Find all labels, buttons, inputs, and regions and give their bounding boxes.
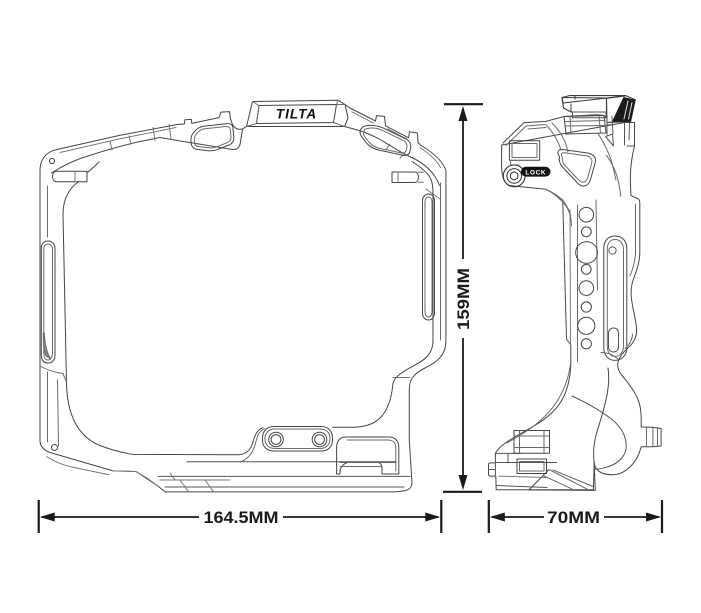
svg-text:TILTA: TILTA xyxy=(276,107,317,122)
svg-text:164.5MM: 164.5MM xyxy=(204,508,279,527)
svg-text:LOCK: LOCK xyxy=(525,169,546,176)
svg-text:159MM: 159MM xyxy=(454,268,473,330)
svg-text:70MM: 70MM xyxy=(547,508,600,527)
